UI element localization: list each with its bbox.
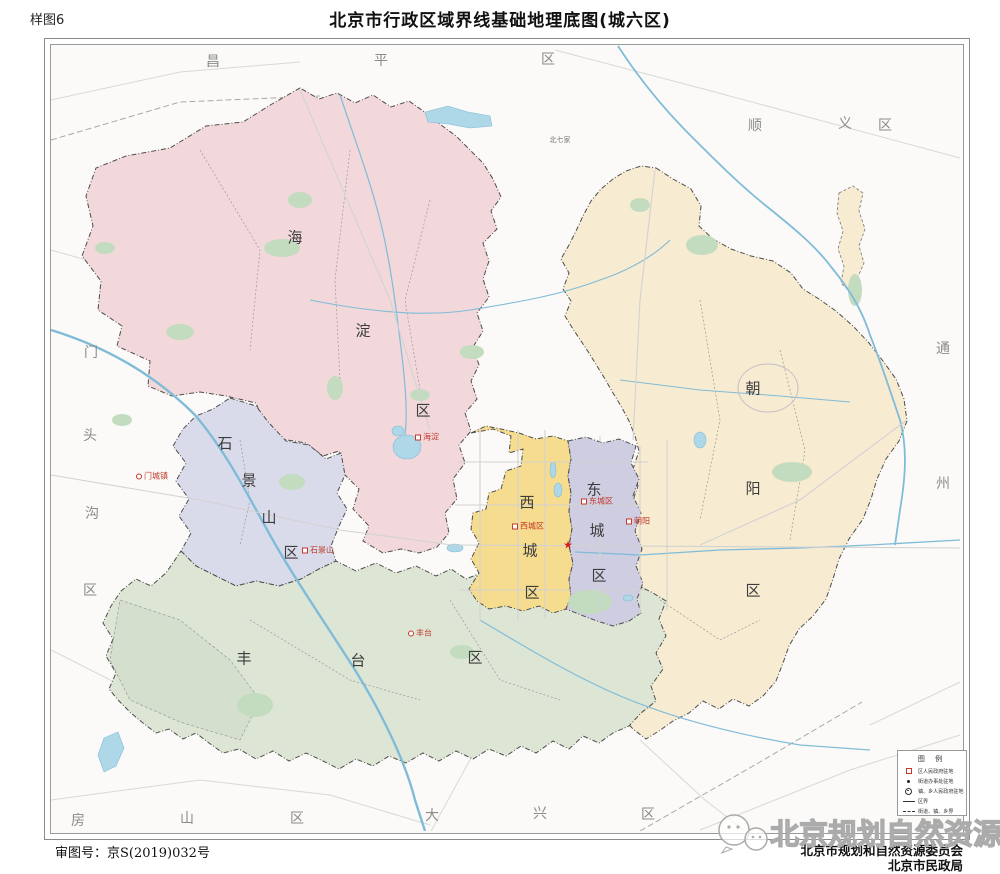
label-fengtai-2: 台 bbox=[350, 650, 365, 671]
label-mentougou-1: 门 bbox=[84, 342, 98, 362]
label-changping-3: 区 bbox=[541, 49, 555, 69]
label-chaoyang-1: 朝 bbox=[745, 378, 760, 399]
label-changping-1: 昌 bbox=[206, 51, 220, 71]
label-xicheng-3: 区 bbox=[524, 582, 539, 603]
label-daxing-3: 区 bbox=[641, 804, 655, 824]
label-haidian-2: 淀 bbox=[355, 320, 370, 341]
label-daxing-1: 大 bbox=[425, 805, 439, 825]
seat-square-icon bbox=[512, 523, 518, 529]
label-shunyi-3: 区 bbox=[878, 115, 892, 135]
label-shunyi-2: 义 bbox=[838, 113, 852, 133]
org-civil-affairs: 北京市民政局 bbox=[888, 855, 963, 874]
legend-item: 街道办事处驻地 bbox=[902, 776, 962, 786]
subdistrict-office-icon bbox=[902, 780, 915, 783]
seat-chaoyang: 朝阳 bbox=[626, 516, 650, 527]
label-shijingshan-3: 山 bbox=[261, 507, 276, 528]
seat-shijingshan: 石景山 bbox=[302, 545, 334, 556]
label-mentougou-3: 沟 bbox=[85, 503, 99, 523]
label-xicheng-2: 城 bbox=[522, 540, 537, 561]
label-changping-2: 平 bbox=[374, 50, 388, 70]
legend-item: 区人民政府驻地 bbox=[902, 766, 962, 776]
seat-square-icon bbox=[626, 518, 632, 524]
seat-square-icon bbox=[302, 547, 308, 553]
town-seat-icon bbox=[902, 788, 915, 795]
label-fengtai-3: 区 bbox=[467, 647, 482, 668]
tiananmen-star-icon: ★ bbox=[563, 540, 573, 551]
label-shijingshan-4: 区 bbox=[283, 542, 298, 563]
label-fangshan-3: 区 bbox=[290, 808, 304, 828]
legend-box: 图 例 区人民政府驻地 街道办事处驻地 镇、乡人民政府驻地 区界 街道、镇、乡界 bbox=[897, 750, 967, 816]
wechat-bubbles-icon bbox=[712, 809, 774, 859]
map-sheet: 样图6 北京市行政区域界线基础地理底图(城六区) bbox=[0, 0, 1000, 874]
district-boundary-icon bbox=[902, 801, 915, 802]
legend-title: 图 例 bbox=[902, 754, 962, 764]
label-shijingshan-2: 景 bbox=[241, 470, 256, 491]
label-fengtai-1: 丰 bbox=[236, 648, 251, 669]
legend-item: 区界 bbox=[902, 796, 962, 806]
label-fangshan-2: 山 bbox=[180, 808, 194, 828]
label-mentougou-4: 区 bbox=[83, 580, 97, 600]
label-haidian-3: 区 bbox=[415, 400, 430, 421]
seat-haidian: 海淀 bbox=[415, 432, 439, 443]
town-beiqijia: 北七家 bbox=[550, 135, 571, 145]
map-canvas bbox=[51, 45, 961, 831]
label-tongzhou-2: 州 bbox=[936, 473, 950, 493]
label-daxing-2: 兴 bbox=[533, 803, 547, 823]
label-dongcheng-3: 区 bbox=[591, 565, 606, 586]
seat-square-icon bbox=[415, 434, 421, 440]
label-fangshan-1: 房 bbox=[71, 810, 85, 830]
legend-item: 镇、乡人民政府驻地 bbox=[902, 786, 962, 796]
district-seat-icon bbox=[902, 768, 915, 774]
map-title: 北京市行政区域界线基础地理底图(城六区) bbox=[0, 6, 1000, 31]
seat-circle-icon bbox=[408, 630, 414, 636]
approval-number: 审图号：京S(2019)032号 bbox=[55, 842, 210, 861]
seat-square-icon bbox=[581, 498, 587, 504]
seat-mencheng: 门城镇 bbox=[136, 471, 168, 482]
label-mentougou-2: 头 bbox=[83, 425, 97, 445]
watermark-text: 北京规划自然资源 bbox=[770, 811, 1000, 853]
seat-circle-icon bbox=[136, 473, 142, 479]
label-shunyi-1: 顺 bbox=[748, 115, 762, 135]
label-haidian-1: 海 bbox=[287, 227, 302, 248]
label-chaoyang-2: 阳 bbox=[745, 478, 760, 499]
seat-fengtai: 丰台 bbox=[408, 628, 432, 639]
seat-dongcheng: 东城区 bbox=[581, 496, 613, 507]
label-xicheng-1: 西 bbox=[519, 492, 534, 513]
seat-xicheng: 西城区 bbox=[512, 521, 544, 532]
label-shijingshan-1: 石 bbox=[217, 433, 232, 454]
label-dongcheng-2: 城 bbox=[589, 520, 604, 541]
label-tongzhou-1: 通 bbox=[936, 338, 950, 358]
label-chaoyang-3: 区 bbox=[745, 580, 760, 601]
